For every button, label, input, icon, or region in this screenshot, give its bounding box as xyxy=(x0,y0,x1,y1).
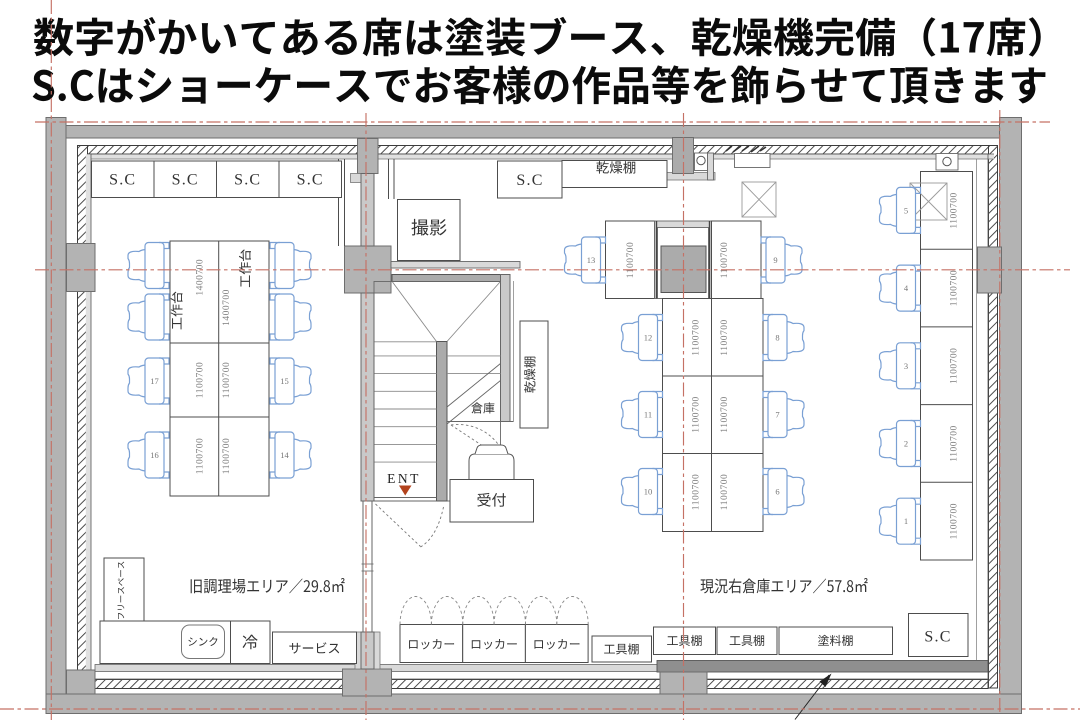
svg-text:1100700: 1100700 xyxy=(950,348,960,384)
svg-text:16: 16 xyxy=(150,450,159,460)
svg-text:1100700: 1100700 xyxy=(950,192,960,228)
svg-text:15: 15 xyxy=(280,376,289,386)
svg-text:1100700: 1100700 xyxy=(692,319,702,355)
svg-text:1100700: 1100700 xyxy=(626,242,636,278)
svg-text:9: 9 xyxy=(773,255,777,265)
svg-text:1100700: 1100700 xyxy=(222,438,232,474)
svg-text:1100700: 1100700 xyxy=(720,319,730,355)
svg-text:S.C: S.C xyxy=(516,172,543,189)
svg-text:1100700: 1100700 xyxy=(950,270,960,306)
svg-text:1100700: 1100700 xyxy=(196,438,206,474)
svg-text:1100700: 1100700 xyxy=(950,503,960,539)
svg-text:1100700: 1100700 xyxy=(720,242,730,278)
svg-text:2: 2 xyxy=(904,439,908,449)
svg-text:S.C: S.C xyxy=(924,629,951,646)
svg-text:7: 7 xyxy=(775,410,779,420)
svg-text:1: 1 xyxy=(904,516,908,526)
svg-text:8: 8 xyxy=(775,333,779,343)
svg-text:S.C: S.C xyxy=(297,172,324,189)
svg-text:1100700: 1100700 xyxy=(692,474,702,510)
svg-text:1100700: 1100700 xyxy=(196,362,206,398)
svg-text:S.C: S.C xyxy=(109,172,136,189)
svg-text:11: 11 xyxy=(644,410,652,420)
svg-text:1100700: 1100700 xyxy=(720,396,730,432)
svg-text:S.C: S.C xyxy=(234,172,261,189)
svg-text:S.C: S.C xyxy=(172,172,199,189)
svg-text:17: 17 xyxy=(150,376,159,386)
svg-text:5: 5 xyxy=(904,205,908,215)
svg-text:ENT: ENT xyxy=(387,471,421,486)
svg-text:1100700: 1100700 xyxy=(720,474,730,510)
svg-text:1100700: 1100700 xyxy=(950,425,960,461)
svg-text:14: 14 xyxy=(280,450,289,460)
svg-text:1100700: 1100700 xyxy=(692,396,702,432)
svg-text:1100700: 1100700 xyxy=(222,362,232,398)
svg-text:10: 10 xyxy=(644,487,653,497)
svg-text:6: 6 xyxy=(775,487,779,497)
svg-text:1400700: 1400700 xyxy=(222,289,232,326)
svg-text:12: 12 xyxy=(644,333,653,343)
svg-text:13: 13 xyxy=(587,255,596,265)
svg-text:3: 3 xyxy=(904,361,908,371)
svg-text:1400700: 1400700 xyxy=(196,259,206,296)
